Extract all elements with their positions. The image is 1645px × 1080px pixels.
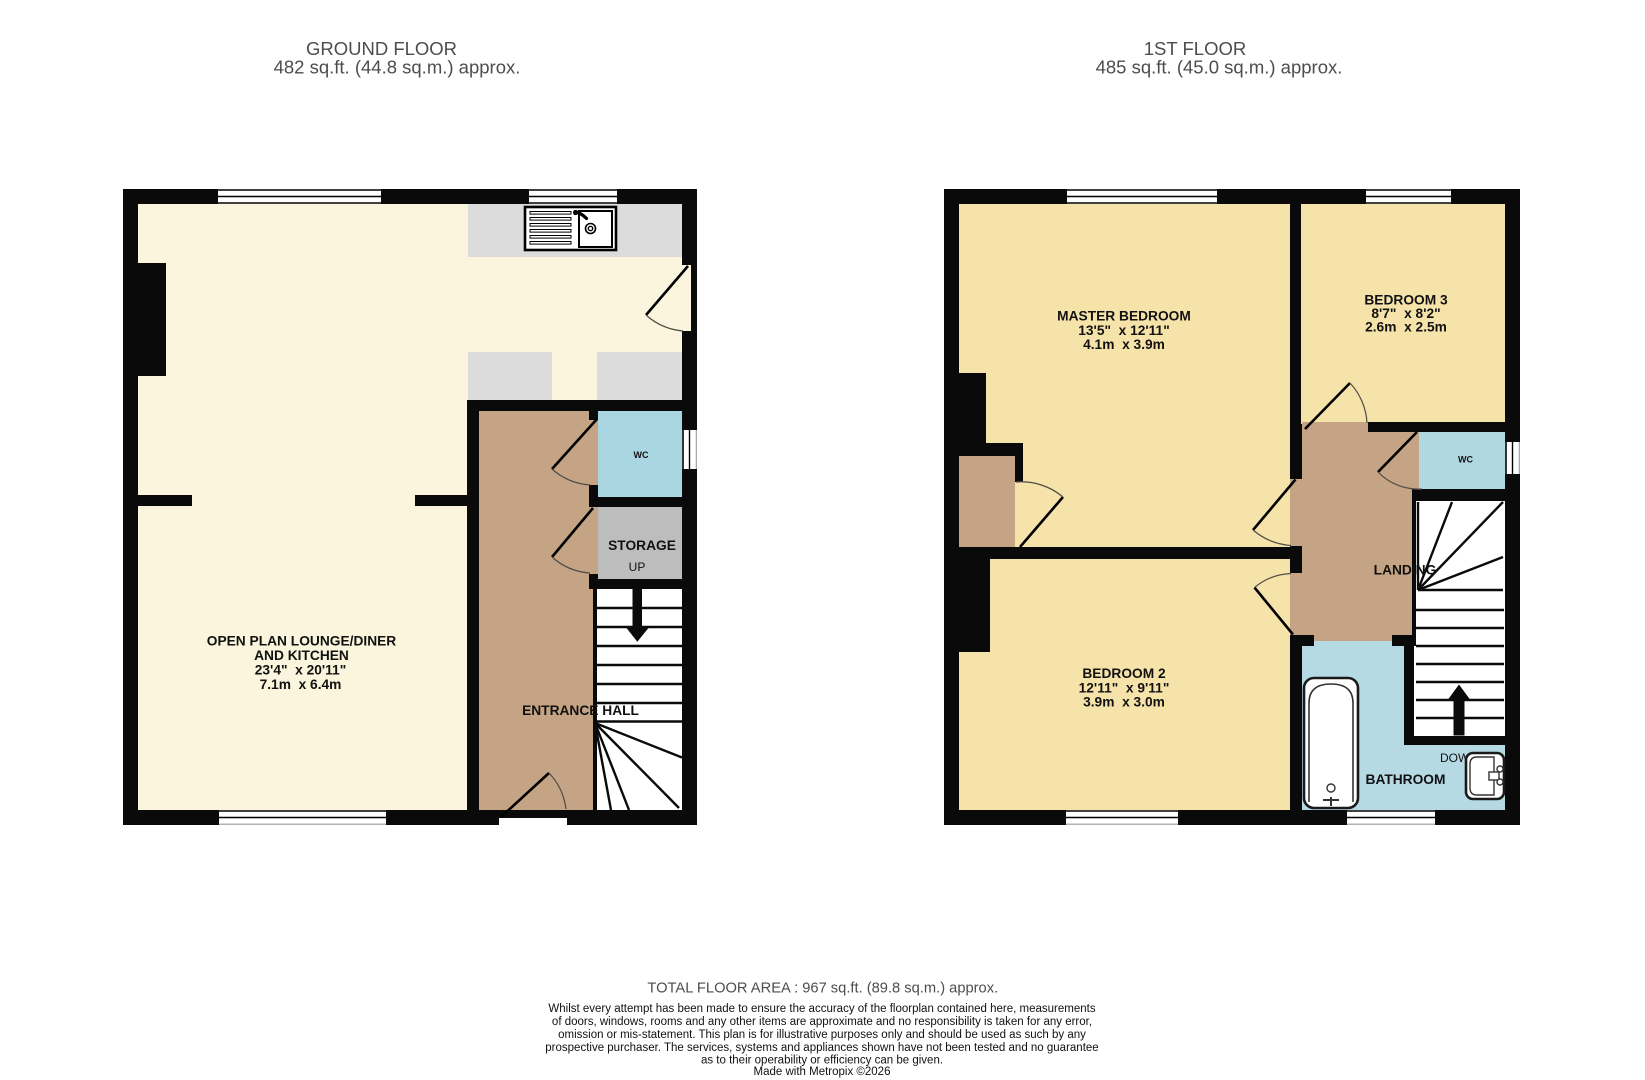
svg-text:WC: WC	[634, 450, 649, 460]
svg-text:AND KITCHEN: AND KITCHEN	[254, 648, 349, 663]
svg-text:482 sq.ft. (44.8 sq.m.) approx: 482 sq.ft. (44.8 sq.m.) approx.	[274, 57, 521, 78]
svg-text:LANDING: LANDING	[1374, 563, 1437, 578]
svg-text:of doors, windows, rooms and a: of doors, windows, rooms and any other i…	[552, 1016, 1092, 1028]
svg-text:OPEN PLAN LOUNGE/DINER: OPEN PLAN LOUNGE/DINER	[207, 633, 397, 648]
svg-text:485 sq.ft. (45.0 sq.m.) approx: 485 sq.ft. (45.0 sq.m.) approx.	[1096, 57, 1343, 78]
svg-text:TOTAL FLOOR AREA : 967 sq.ft.: TOTAL FLOOR AREA : 967 sq.ft. (89.8 sq.m…	[647, 981, 998, 997]
svg-text:omission or mis-statement. Thi: omission or mis-statement. This plan is …	[558, 1029, 1086, 1041]
svg-text:BATHROOM: BATHROOM	[1366, 772, 1446, 787]
svg-text:4.1m x 3.9m: 4.1m x 3.9m	[1083, 337, 1165, 352]
svg-text:STORAGE: STORAGE	[608, 538, 676, 553]
svg-text:3.9m x 3.0m: 3.9m x 3.0m	[1083, 695, 1165, 710]
svg-text:ENTRANCE HALL: ENTRANCE HALL	[522, 703, 639, 718]
svg-text:Whilst every attempt has been: Whilst every attempt has been made to en…	[548, 1003, 1095, 1015]
svg-text:2.6m x 2.5m: 2.6m x 2.5m	[1365, 320, 1447, 335]
svg-text:23'4" x 20'11": 23'4" x 20'11"	[255, 663, 346, 678]
svg-text:7.1m x 6.4m: 7.1m x 6.4m	[260, 677, 342, 692]
svg-text:BEDROOM 2: BEDROOM 2	[1082, 666, 1166, 681]
svg-text:WC: WC	[1458, 454, 1473, 464]
svg-text:12'11" x 9'11": 12'11" x 9'11"	[1079, 680, 1170, 695]
svg-text:prospective purchaser. The ser: prospective purchaser. The services, sys…	[545, 1042, 1098, 1054]
svg-text:UP: UP	[629, 560, 646, 574]
svg-text:as to their operability or eff: as to their operability or efficiency ca…	[701, 1055, 943, 1067]
svg-text:13'5" x 12'11": 13'5" x 12'11"	[1078, 323, 1169, 338]
svg-text:MASTER BEDROOM: MASTER BEDROOM	[1057, 309, 1191, 324]
svg-text:Made with Metropix ©2026: Made with Metropix ©2026	[754, 1066, 891, 1078]
